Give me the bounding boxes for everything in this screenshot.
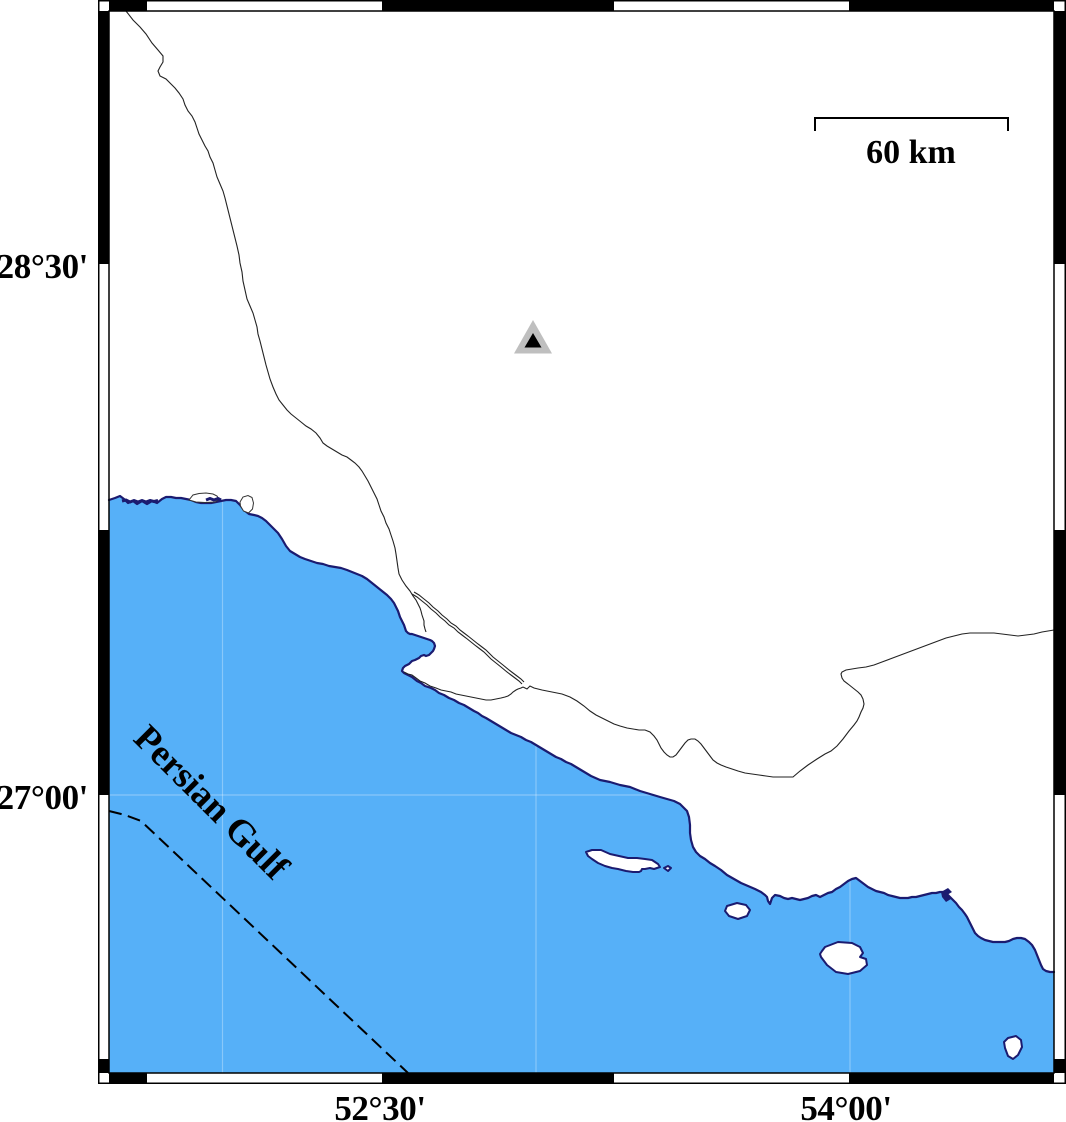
svg-text:27°00': 27°00' [0,778,88,817]
svg-text:60 km: 60 km [866,134,956,171]
svg-text:52°30': 52°30' [334,1089,425,1122]
svg-text:54°00': 54°00' [800,1089,891,1122]
svg-text:28°30': 28°30' [0,247,88,286]
